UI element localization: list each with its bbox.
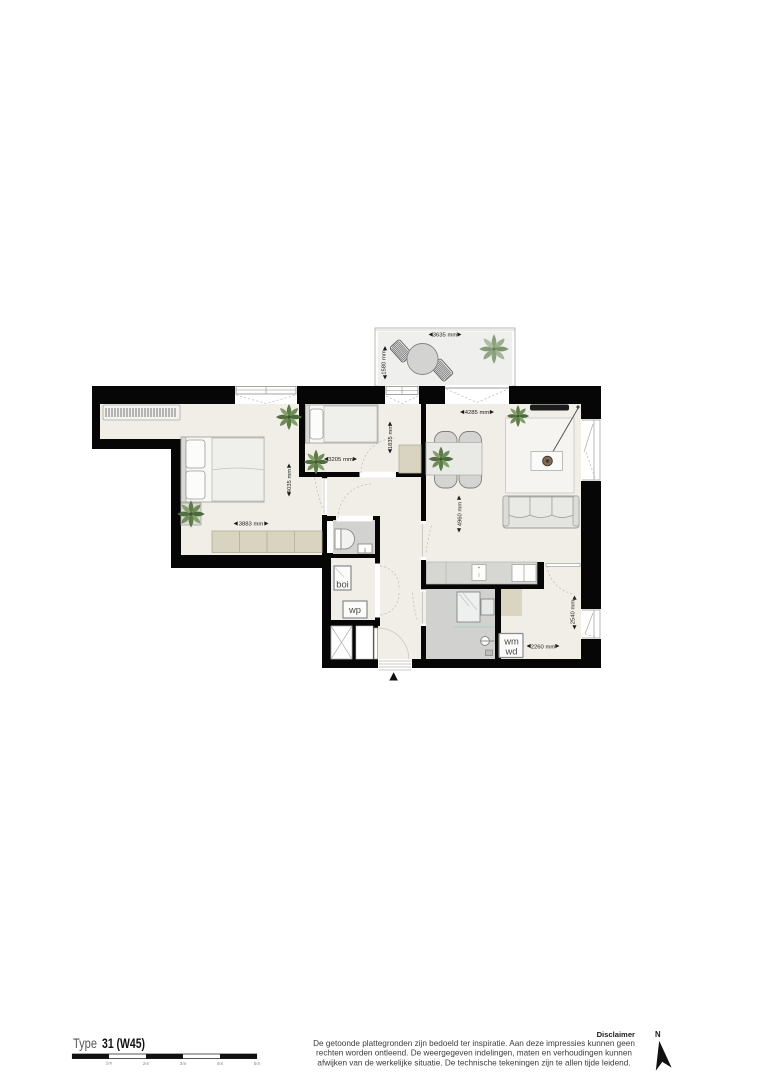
svg-text:5m: 5m bbox=[254, 1061, 261, 1067]
svg-text:Disclaimer: Disclaimer bbox=[597, 1030, 635, 1039]
svg-text:31 (W45): 31 (W45) bbox=[102, 1035, 145, 1051]
svg-text:1m: 1m bbox=[106, 1061, 113, 1067]
svg-text:2260 mm: 2260 mm bbox=[531, 645, 556, 651]
svg-text:4285 mm: 4285 mm bbox=[465, 410, 490, 416]
svg-text:1835 mm: 1835 mm bbox=[388, 425, 394, 450]
svg-text:Type: Type bbox=[73, 1035, 97, 1051]
svg-text:De getoonde plattegronden zijn: De getoonde plattegronden zijn bedoeld t… bbox=[313, 1039, 635, 1048]
svg-text:boi: boi bbox=[336, 579, 349, 590]
svg-text:3205 mm: 3205 mm bbox=[328, 457, 353, 463]
svg-text:4035 mm: 4035 mm bbox=[287, 469, 293, 494]
svg-text:1580 mm: 1580 mm bbox=[382, 350, 388, 375]
svg-text:rechten worden ontleend. De we: rechten worden ontleend. De weergegeven … bbox=[316, 1049, 632, 1058]
svg-text:afwijken van de werkelijke sit: afwijken van de werkelijke situatie. De … bbox=[317, 1058, 630, 1067]
svg-text:wd: wd bbox=[505, 646, 518, 657]
svg-text:2m: 2m bbox=[143, 1061, 150, 1067]
svg-text:wp: wp bbox=[348, 604, 361, 615]
svg-text:3m: 3m bbox=[180, 1061, 187, 1067]
svg-text:4m: 4m bbox=[217, 1061, 224, 1067]
svg-text:N: N bbox=[655, 1030, 661, 1039]
svg-text:4960 mm: 4960 mm bbox=[458, 502, 464, 527]
svg-text:3883 mm: 3883 mm bbox=[239, 522, 264, 528]
svg-text:3635 mm: 3635 mm bbox=[433, 333, 458, 339]
svg-text:2540 mm: 2540 mm bbox=[571, 600, 577, 625]
